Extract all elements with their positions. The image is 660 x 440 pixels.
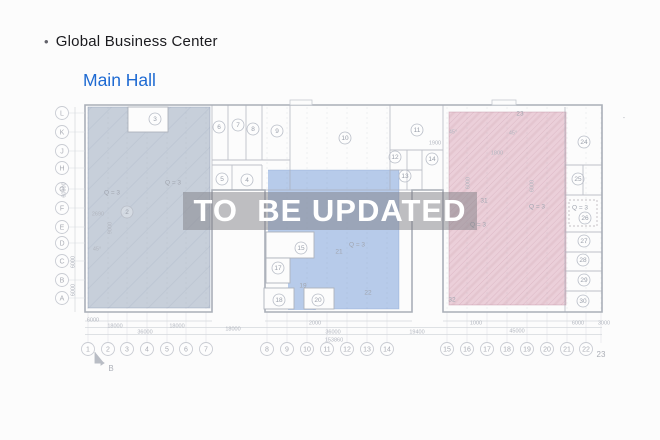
col-axis-label-15: 15 [441, 343, 454, 356]
col-axis-label-19: 19 [521, 343, 534, 356]
row-axis-label-L: L [56, 107, 86, 120]
svg-text:7: 7 [236, 122, 240, 129]
svg-text:13: 13 [401, 173, 409, 180]
row-axis-label-G: G [56, 183, 86, 196]
col-axis-label-10: 10 [301, 343, 314, 356]
col-axis-label-7: 7 [200, 343, 213, 356]
dim-label: 153860 [325, 337, 343, 343]
svg-text:B: B [60, 277, 65, 284]
col-axis-label-9: 9 [281, 343, 294, 356]
room-label-19: 19 [299, 283, 307, 290]
svg-text:E: E [60, 224, 65, 231]
svg-text:22: 22 [582, 346, 590, 353]
svg-text:28: 28 [579, 257, 587, 264]
row-axis-label-K: K [56, 126, 86, 139]
svg-text:B: B [108, 364, 113, 373]
col-axis-label-12: 12 [341, 343, 354, 356]
svg-text:C: C [59, 258, 64, 265]
svg-text:18: 18 [503, 346, 511, 353]
room-label-32: 32 [448, 297, 456, 304]
svg-text:26: 26 [581, 215, 589, 222]
svg-text:J: J [60, 148, 64, 155]
dim-label: 6000 [529, 180, 535, 192]
col-axis-label-6: 6 [180, 343, 193, 356]
dim-label: 1000 [470, 320, 482, 326]
svg-text:6: 6 [184, 346, 188, 353]
svg-text:2: 2 [125, 209, 129, 216]
dim-label: 45° [93, 246, 101, 252]
room-label-2: 2 [121, 206, 133, 218]
svg-text:H: H [59, 165, 64, 172]
room-label-21: 21 [335, 249, 343, 256]
svg-text:17: 17 [483, 346, 491, 353]
room-label-Q = 3: Q = 3 [349, 242, 365, 249]
dim-label: 6000 [70, 284, 76, 296]
svg-text:15: 15 [297, 245, 305, 252]
svg-text:9: 9 [285, 346, 289, 353]
room-label-Q = 3: Q = 3 [572, 205, 588, 212]
room-label-11: 11 [411, 124, 423, 136]
room-label-5: 5 [216, 173, 228, 185]
dim-label: 6000 [87, 317, 99, 323]
col-axis-label-11: 11 [321, 343, 334, 356]
room-label-10: 10 [339, 132, 351, 144]
svg-text:4: 4 [245, 177, 249, 184]
room-label-17: 17 [272, 262, 284, 274]
col-axis: 1234567891011121314151617181920212223 [82, 343, 606, 360]
room-label-24: 24 [578, 136, 590, 148]
top-bump [290, 100, 312, 105]
room-label-20: 20 [312, 294, 324, 306]
dim-label: 36000 [137, 329, 152, 335]
svg-text:7: 7 [204, 346, 208, 353]
svg-text:14: 14 [383, 346, 391, 353]
svg-text:6: 6 [217, 124, 221, 131]
room-label-25: 25 [572, 173, 584, 185]
col-axis-label-5: 5 [161, 343, 174, 356]
col-axis-label-16: 16 [461, 343, 474, 356]
dim-label: 9000 [107, 222, 113, 234]
watermark-banner: TO BE UPDATED [183, 192, 477, 230]
page: •Global Business Center Main Hall [0, 0, 660, 440]
col-axis-label-13: 13 [361, 343, 374, 356]
svg-text:8: 8 [265, 346, 269, 353]
svg-text:20: 20 [543, 346, 551, 353]
svg-text:8: 8 [251, 126, 255, 133]
room-label-28: 28 [577, 254, 589, 266]
col-axis-label-4: 4 [141, 343, 154, 356]
svg-text:17: 17 [274, 265, 282, 272]
room-label-13: 13 [399, 170, 411, 182]
row-axis-label-D: D [56, 237, 86, 250]
svg-text:1: 1 [86, 346, 90, 353]
svg-text:21: 21 [563, 346, 571, 353]
col-axis-label-14: 14 [381, 343, 394, 356]
dim-label: 36000 [325, 329, 340, 335]
row-axis-label-E: E [56, 221, 86, 234]
svg-text:A: A [60, 295, 65, 302]
room-label-14: 14 [426, 153, 438, 165]
svg-text:25: 25 [574, 176, 582, 183]
svg-text:9: 9 [275, 128, 279, 135]
room-label-18: 18 [273, 294, 285, 306]
dim-label: 2000 [309, 320, 321, 326]
dim-label: 18000 [107, 323, 122, 329]
room-label-4: 4 [241, 174, 253, 186]
svg-text:12: 12 [343, 346, 351, 353]
svg-text:27: 27 [580, 238, 588, 245]
row-axis-label-J: J [56, 145, 86, 158]
svg-text:20: 20 [314, 297, 322, 304]
col-axis-label-2: 2 [102, 343, 115, 356]
col-axis-label-17: 17 [481, 343, 494, 356]
room-label-22: 22 [364, 290, 372, 297]
dim-label: 45000 [509, 328, 524, 334]
dim-label: 45° [509, 130, 517, 136]
svg-text:15: 15 [443, 346, 451, 353]
svg-text:30: 30 [579, 298, 587, 305]
dim-label: 18000 [169, 323, 184, 329]
dim-label: 6000 [465, 177, 471, 189]
room-label-6: 6 [213, 121, 225, 133]
room-label-Q = 3: Q = 3 [165, 180, 181, 187]
room-label-Q = 3: Q = 3 [104, 190, 120, 197]
room-label-7: 7 [232, 119, 244, 131]
col-axis-label-3: 3 [121, 343, 134, 356]
room-label-29: 29 [578, 274, 590, 286]
dim-label: 2690 [92, 211, 104, 217]
col-axis-label-22: 22 [580, 343, 593, 356]
svg-text:11: 11 [414, 127, 421, 134]
col-axis-label-21: 21 [561, 343, 574, 356]
col-axis-label-20: 20 [541, 343, 554, 356]
svg-text:K: K [60, 129, 65, 136]
floor-plan: B LKJHGFEDCBA 12345678910111213141516171… [0, 0, 660, 440]
room-label-8: 8 [247, 123, 259, 135]
dim-label: 1900 [429, 140, 441, 146]
svg-text:14: 14 [428, 156, 436, 163]
row-axis: LKJHGFEDCBA [56, 107, 86, 305]
svg-text:3: 3 [153, 116, 157, 123]
room-label-31: 31 [480, 198, 488, 205]
svg-text:L: L [60, 110, 64, 117]
svg-text:2: 2 [106, 346, 110, 353]
svg-text:3: 3 [125, 346, 129, 353]
svg-text:24: 24 [580, 139, 588, 146]
svg-text:16: 16 [463, 346, 471, 353]
svg-text:10: 10 [341, 135, 349, 142]
room-label-23: 23 [516, 111, 524, 118]
svg-text:5: 5 [165, 346, 169, 353]
dim-label: 18000 [225, 326, 240, 332]
svg-text:11: 11 [323, 346, 330, 353]
row-axis-label-H: H [56, 162, 86, 175]
svg-text:23: 23 [597, 350, 606, 359]
col-axis-label-8: 8 [261, 343, 274, 356]
room-label-9: 9 [271, 125, 283, 137]
svg-text:F: F [60, 205, 64, 212]
svg-text:4: 4 [145, 346, 149, 353]
room-label-26: 26 [579, 212, 591, 224]
dim-label: 6000 [572, 320, 584, 326]
room-label-27: 27 [578, 235, 590, 247]
room-label-15: 15 [295, 242, 307, 254]
svg-text:18: 18 [275, 297, 283, 304]
svg-text:D: D [59, 240, 64, 247]
dim-label: 1800 [491, 150, 503, 156]
top-bump [492, 100, 516, 105]
col-axis-label-1: 1 [82, 343, 95, 356]
svg-text:5: 5 [220, 176, 224, 183]
col-axis-label-23: 23 [597, 350, 606, 359]
svg-text:29: 29 [580, 277, 588, 284]
svg-text:12: 12 [391, 154, 399, 161]
dim-label: 45° [449, 129, 457, 135]
svg-text:13: 13 [363, 346, 371, 353]
room-label-12: 12 [389, 151, 401, 163]
room-label-3: 3 [149, 113, 161, 125]
svg-text:10: 10 [303, 346, 311, 353]
dim-label: 60000 [61, 182, 67, 197]
room-label-Q = 3: Q = 3 [529, 204, 545, 211]
col-axis-label-18: 18 [501, 343, 514, 356]
dim-label: 6000 [70, 256, 76, 268]
room-label--: - [623, 115, 625, 122]
room-label-30: 30 [577, 295, 589, 307]
row-axis-label-F: F [56, 202, 86, 215]
svg-text:19: 19 [523, 346, 531, 353]
dim-label: 19400 [409, 329, 424, 335]
dim-label: 3000 [598, 320, 610, 326]
